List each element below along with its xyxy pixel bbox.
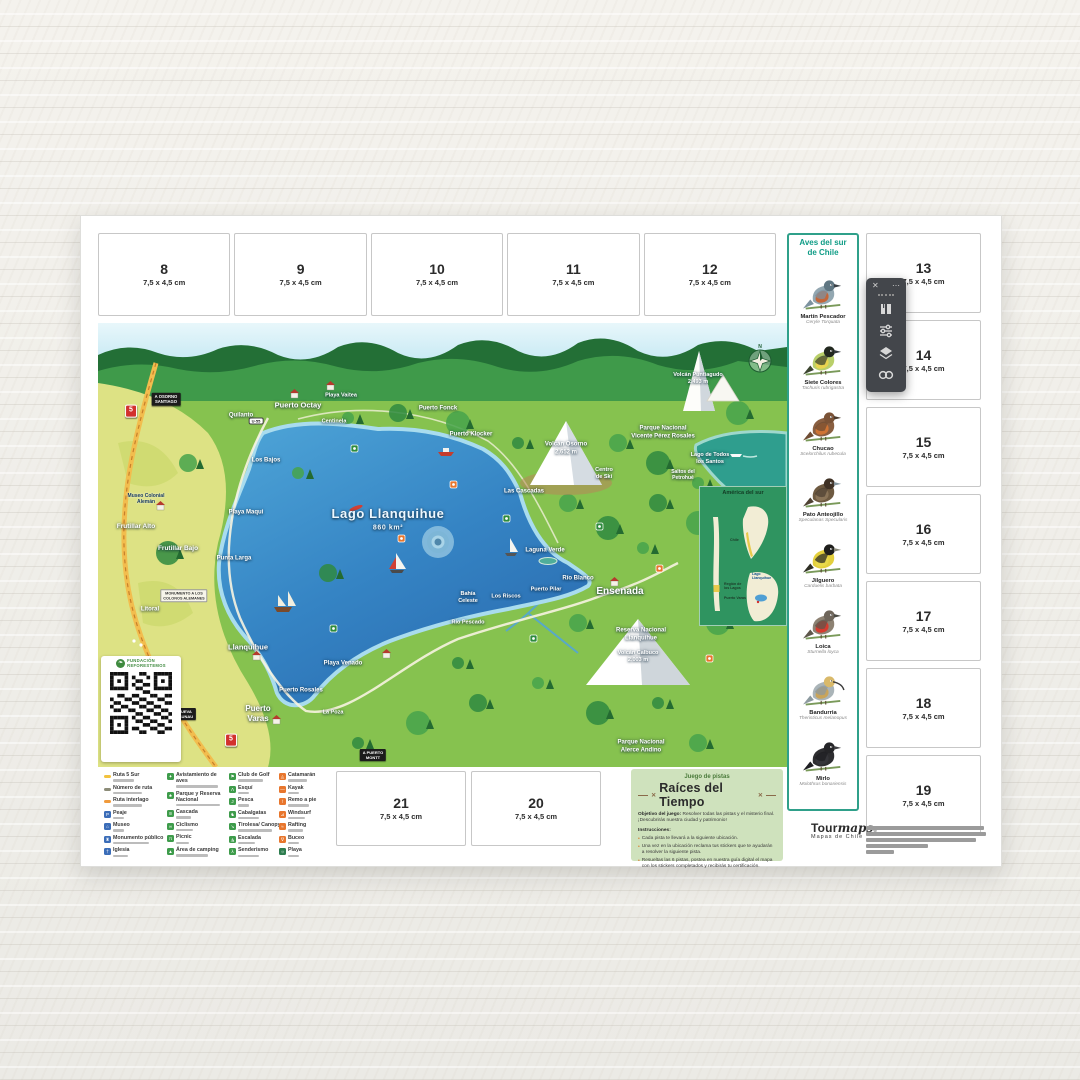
map-sign: A PUERTO MONTT: [360, 749, 386, 761]
sticker-size-label: 7,5 x 4,5 cm: [380, 812, 422, 821]
legend-label: Museo: [113, 822, 130, 828]
sticker-box-20: 207,5 x 4,5 cm: [471, 771, 601, 846]
legend-translation-bar: [238, 804, 249, 807]
qr-card: ❧ FUNDACIÓN REFORESTEMOS: [101, 656, 181, 762]
link-icon[interactable]: [873, 364, 899, 386]
legend-item: ⊺Remo a pie: [279, 797, 341, 807]
sticker-size-label: 7,5 x 4,5 cm: [902, 799, 944, 808]
legend-pictogram-icon: J: [229, 798, 236, 805]
sticker-box-10: 107,5 x 4,5 cm: [371, 233, 503, 316]
legend-translation-bar: [238, 842, 255, 845]
sticker-number: 16: [916, 522, 932, 536]
legend-translation-bar: [113, 842, 149, 845]
fine-print-bars: [866, 826, 991, 856]
legend-item: ≈Rafting: [279, 822, 341, 832]
legend-translation-bar: [288, 817, 305, 820]
sticker-size-label: 7,5 x 4,5 cm: [902, 712, 944, 721]
game-instruction: •Una vez en la ubicación reclama tus sti…: [638, 844, 776, 857]
svg-text:N: N: [758, 344, 762, 350]
map-label: Centro de Ski: [595, 467, 613, 481]
sticker-number: 18: [916, 696, 932, 710]
map-label: Reserva Nacional Llanquihue: [616, 628, 666, 643]
locator-inset: América del sur Chile Región de los Lago…: [699, 486, 787, 626]
legend-translation-bar: [113, 792, 142, 795]
sticker-number: 21: [393, 796, 409, 810]
sticker-size-label: 7,5 x 4,5 cm: [902, 625, 944, 634]
legend-label: Catamarán: [288, 772, 315, 778]
sticker-number: 12: [702, 262, 718, 276]
legend-item: ⊿Windsurf: [279, 810, 341, 820]
map-label: Lago de Todos los Santos: [691, 452, 730, 466]
route-line-swatch: [104, 775, 111, 778]
legend-pictogram-icon: ✦: [167, 773, 174, 780]
legend-label: Picnic: [176, 834, 192, 840]
fine-print-bar: [866, 838, 976, 842]
legend-label: Ruta 5 Sur: [113, 772, 140, 778]
legend-column-1: Ruta 5 SurNúmero de rutaRuta interlagoPP…: [104, 772, 166, 860]
inset-region-label: Región de los Lagos: [724, 583, 741, 591]
sticker-size-label: 7,5 x 4,5 cm: [143, 278, 185, 287]
route-shield: 5: [225, 734, 237, 747]
legend-translation-bar: [288, 829, 303, 832]
legend-pictogram-icon: ⊺: [279, 798, 286, 805]
legend-item: ◬Catamarán: [279, 772, 341, 782]
map-label: Punta Larga: [217, 555, 252, 563]
fine-print-bar: [866, 844, 928, 848]
legend-translation-bar: [238, 829, 272, 832]
legend-translation-bar: [238, 817, 259, 820]
legend-pictogram-icon: ▲: [167, 848, 174, 855]
legend-pictogram-icon: π: [167, 835, 174, 842]
sticker-box-18: 187,5 x 4,5 cm: [866, 668, 981, 748]
map-label: Las Cascadas: [504, 488, 544, 496]
sticker-size-label: 7,5 x 4,5 cm: [902, 538, 944, 547]
bird-entry: Siete Colores Tachuris rubrigastra: [789, 325, 857, 391]
legend-pictogram-icon: Λ: [229, 786, 236, 793]
map-label: Playa Vaitea: [325, 393, 357, 400]
map-label: Puerto Varas: [245, 704, 270, 724]
game-kicker: Juego de pistas: [638, 774, 776, 780]
floating-editor-toolbar[interactable]: ✕ ⋯: [866, 278, 906, 392]
bird-illustration: [801, 406, 845, 446]
legend-pictogram-icon: ◬: [279, 773, 286, 780]
legend-label: Playa: [288, 847, 302, 853]
bird-entry: Loica Sturnella loyca: [789, 589, 857, 655]
bird-scientific-name: Tachuris rubrigastra: [802, 386, 844, 391]
legend-label: Pesca: [238, 797, 253, 803]
deco-line-right: [766, 795, 776, 796]
legend-label: Ruta interlago: [113, 797, 149, 803]
game-panel: Juego de pistas ✕ Raíces del Tiempo ✕ Ob…: [631, 769, 783, 861]
legend-pictogram-icon: P: [104, 811, 111, 818]
map-label: Frutillar Bajo: [158, 545, 198, 553]
legend-item: ☼Playa: [279, 847, 341, 857]
legend-item: Ruta interlago: [104, 797, 166, 807]
drag-handle[interactable]: [878, 294, 894, 296]
legend-pictogram-icon: ⌂: [104, 823, 111, 830]
legend-label: Peaje: [113, 810, 127, 816]
laguna-verde: [539, 558, 557, 565]
legend-label: Escalada: [238, 835, 261, 841]
sticker-row-top: 87,5 x 4,5 cm97,5 x 4,5 cm107,5 x 4,5 cm…: [98, 233, 776, 316]
bird-illustration: [801, 736, 845, 776]
sticker-number: 9: [297, 262, 305, 276]
legend-pictogram-icon: ♣: [167, 792, 174, 799]
legend-label: Esquí: [238, 785, 252, 791]
legend-label: Club de Golf: [238, 772, 269, 778]
map-label: Quilanto: [229, 412, 253, 420]
bullet-icon: •: [638, 858, 640, 871]
bird-entry: Pato Anteojillo Speculanas Specularis: [789, 457, 857, 523]
sticker-box-9: 97,5 x 4,5 cm: [234, 233, 366, 316]
legend-translation-bar: [113, 804, 142, 807]
legend-item: ✦Avistamiento de aves: [167, 772, 229, 788]
map-label: 860 km²: [373, 525, 403, 534]
legend-translation-bar: [288, 842, 299, 845]
bird-illustration: [801, 274, 845, 314]
sticker-number: 11: [566, 262, 581, 276]
sticker-box-15: 157,5 x 4,5 cm: [866, 407, 981, 487]
legend-item: PPeaje: [104, 810, 166, 820]
legend-label: Área de camping: [176, 847, 219, 853]
sticker-size-label: 7,5 x 4,5 cm: [552, 278, 594, 287]
bird-scientific-name: Molothrus bonariensis: [800, 782, 847, 787]
map-artwork: N: [98, 323, 787, 767]
legend-pictogram-icon: ♜: [104, 836, 111, 843]
legend-item: ≋Cascada: [167, 809, 229, 819]
map-label: Laguna Verde: [525, 547, 564, 555]
inset-lake-label: Lago Llanquihue: [752, 573, 771, 581]
map-label: Puerto Octay: [275, 400, 322, 409]
legend-pictogram-icon: ≋: [167, 810, 174, 817]
sticker-number: 14: [916, 348, 932, 362]
legend-label: Monumento público: [113, 835, 163, 841]
legend-label: Cabalgatas: [238, 810, 266, 816]
sticker-size-label: 7,5 x 4,5 cm: [280, 278, 322, 287]
bird-illustration: [801, 340, 845, 380]
sticker-number: 19: [916, 783, 932, 797]
legend-label: Remo a pie: [288, 797, 316, 803]
legend-translation-bar: [176, 804, 220, 807]
legend-label: Senderismo: [238, 847, 268, 853]
map-label: Litoral: [141, 606, 159, 614]
legend-label: Iglesia: [113, 847, 130, 853]
birds-panel: Aves del sur de Chile Martín Pescador Ce…: [787, 233, 859, 811]
legend-translation-bar: [288, 804, 309, 807]
map-label: Los Bajos: [252, 457, 281, 465]
legend-translation-bar: [288, 779, 307, 782]
sticker-number: 13: [916, 261, 932, 275]
adjust-icon[interactable]: [873, 320, 899, 342]
bird-scientific-name: Carduelis barbata: [804, 584, 842, 589]
map-label: Los Riscos: [491, 594, 520, 601]
sticker-number: 8: [160, 262, 168, 276]
map-label: Puerto Pilar: [531, 587, 562, 594]
illustrated-map: N: [98, 323, 787, 767]
desk-background: 87,5 x 4,5 cm97,5 x 4,5 cm107,5 x 4,5 cm…: [0, 0, 1080, 1080]
sticker-size-label: 7,5 x 4,5 cm: [902, 277, 944, 286]
legend-label: Windsurf: [288, 810, 311, 816]
map-label: Lago Llanquihue: [332, 506, 445, 522]
sticker-number: 20: [528, 796, 544, 810]
bird-scientific-name: Theristicus melanopus: [799, 716, 847, 721]
bullet-icon: •: [638, 836, 640, 843]
map-label: Llanquihue: [228, 642, 268, 651]
sticker-box-12: 127,5 x 4,5 cm: [644, 233, 776, 316]
legend-translation-bar: [113, 817, 124, 820]
foundation-logo: ❧ FUNDACIÓN REFORESTEMOS: [116, 659, 166, 669]
inset-title: América del sur: [700, 490, 786, 496]
sticker-size-label: 7,5 x 4,5 cm: [902, 364, 944, 373]
bird-entry: Bandurria Theristicus melanopus: [789, 655, 857, 721]
legend-label: Cascada: [176, 809, 198, 815]
fine-print-bar: [866, 850, 894, 854]
sticker-size-label: 7,5 x 4,5 cm: [689, 278, 731, 287]
legend-translation-bar: [113, 855, 128, 858]
map-label: La Poza: [323, 710, 344, 717]
inset-country-label: Chile: [730, 539, 739, 543]
sticker-box-11: 117,5 x 4,5 cm: [507, 233, 639, 316]
map-label: Puerto Klocker: [450, 431, 493, 439]
map-label: Río Blanco: [562, 575, 593, 583]
legend-item: ♜Monumento público: [104, 835, 166, 845]
legend-translation-bar: [113, 829, 124, 832]
game-instruction: •Cada pista te llevará a la siguiente ub…: [638, 836, 776, 843]
sticker-box-8: 87,5 x 4,5 cm: [98, 233, 230, 316]
legend-item: Número de ruta: [104, 785, 166, 795]
legend-pictogram-icon: ⊿: [279, 811, 286, 818]
map-label: Frutillar Alto: [117, 523, 155, 531]
sticker-box-17: 177,5 x 4,5 cm: [866, 581, 981, 661]
legend-translation-bar: [176, 829, 193, 832]
bird-illustration: [801, 604, 845, 644]
map-label: Ensenada: [596, 586, 643, 599]
legend-label: Tirolesa/ Canopy: [238, 822, 281, 828]
legend-label: Avistamiento de aves: [176, 772, 229, 784]
legend-translation-bar: [176, 854, 208, 857]
legend-translation-bar: [176, 816, 191, 819]
sticker-size-label: 7,5 x 4,5 cm: [416, 278, 458, 287]
map-sign: MONUMENTO A LOS COLONOS ALEMANES: [160, 589, 207, 602]
game-instructions-label: Instrucciones:: [638, 828, 671, 833]
legend-item: —Kayak: [279, 785, 341, 795]
map-legend: Ruta 5 SurNúmero de rutaRuta interlagoPP…: [101, 772, 335, 860]
legend-translation-bar: [288, 855, 299, 858]
legend-pictogram-icon: —: [279, 786, 286, 793]
legend-column-4: ◬Catamarán—Kayak⊺Remo a pie⊿Windsurf≈Raf…: [279, 772, 341, 860]
legend-translation-bar: [176, 842, 189, 845]
legend-translation-bar: [176, 785, 218, 788]
legend-item: †Iglesia: [104, 847, 166, 857]
bird-scientific-name: Speculanas Specularis: [799, 518, 848, 523]
legend-item: Ruta 5 Sur: [104, 772, 166, 782]
legend-pictogram-icon: ⚑: [229, 773, 236, 780]
sticker-number: 15: [916, 435, 932, 449]
legend-item: ♣Parque y Reserva Nacional: [167, 791, 229, 807]
bird-illustration: [801, 670, 845, 710]
sticker-box-16: 167,5 x 4,5 cm: [866, 494, 981, 574]
map-label: Puerto Fonck: [419, 405, 457, 413]
legend-label: Ciclismo: [176, 822, 198, 828]
legend-pictogram-icon: ≈: [279, 823, 286, 830]
legend-label: Kayak: [288, 785, 304, 791]
legend-item: ▲Área de camping: [167, 847, 229, 857]
bird-illustration: [801, 472, 845, 512]
deco-cross-left: ✕: [651, 792, 656, 799]
map-label: Saltos del Petrohué: [671, 469, 695, 482]
bird-entry: Martín Pescador Ceryle Torquata: [789, 259, 857, 325]
map-label: Volcán Calbuco 2.003 m: [618, 650, 659, 664]
game-instructions-list: •Cada pista te llevará a la siguiente ub…: [638, 836, 776, 870]
map-label: Volcán Puntiagudo 2.493 m: [673, 372, 722, 386]
close-icon[interactable]: ✕: [872, 281, 879, 291]
game-objective-label: Objetivo del juego:: [638, 812, 681, 817]
legend-item: ⌂Museo: [104, 822, 166, 832]
map-label: Playa Venado: [324, 660, 363, 668]
legend-translation-bar: [113, 779, 134, 782]
target-marker: [422, 526, 454, 558]
legend-item: ∇Buceo: [279, 835, 341, 845]
route-line-swatch: [104, 800, 111, 803]
sticker-box-21: 217,5 x 4,5 cm: [336, 771, 466, 846]
route-shield: 5: [125, 405, 137, 418]
map-sheet: 87,5 x 4,5 cm97,5 x 4,5 cm107,5 x 4,5 cm…: [80, 215, 1002, 867]
birds-panel-title: Aves del sur de Chile: [789, 238, 857, 257]
map-label: Río Pescado: [451, 620, 484, 627]
game-title: Raíces del Tiempo: [659, 781, 755, 809]
sticker-size-label: 7,5 x 4,5 cm: [515, 812, 557, 821]
sticker-size-label: 7,5 x 4,5 cm: [902, 451, 944, 460]
inset-shapes: [700, 499, 786, 624]
legend-pictogram-icon: †: [104, 848, 111, 855]
route-line-swatch: [104, 788, 111, 791]
legend-item: πPicnic: [167, 834, 229, 844]
legend-label: Rafting: [288, 822, 306, 828]
bullet-icon: •: [638, 844, 640, 857]
bird-entry: Jilguero Carduelis barbata: [789, 523, 857, 589]
sticker-number: 10: [429, 262, 445, 276]
leaf-icon: ❧: [116, 659, 125, 668]
legend-label: Buceo: [288, 835, 304, 841]
bird-entry: Mirlo Molothrus bonariensis: [789, 721, 857, 787]
map-label: Puerto Rosales: [279, 687, 323, 695]
legend-translation-bar: [238, 792, 249, 795]
map-sign: A OSORNO SANTIAGO: [152, 393, 181, 406]
more-icon[interactable]: ⋯: [892, 281, 900, 291]
layers-icon[interactable]: [873, 342, 899, 364]
legend-pictogram-icon: ☼: [279, 848, 286, 855]
inset-city-label: Puerto Varas: [724, 597, 746, 601]
bird-entry: Chucao Scelorchilus rubecula: [789, 391, 857, 457]
map-label: Volcán Osorno 2.652 m: [545, 442, 587, 457]
legend-translation-bar: [238, 779, 263, 782]
legend-pictogram-icon: ∞: [167, 823, 174, 830]
legend-pictogram-icon: λ: [229, 848, 236, 855]
legend-pictogram-icon: ◮: [229, 836, 236, 843]
legend-column-2: ✦Avistamiento de aves♣Parque y Reserva N…: [167, 772, 229, 860]
birds-list: Martín Pescador Ceryle Torquata Siete Co…: [789, 259, 857, 787]
brand-name-part1: Tour: [811, 821, 838, 835]
legend-pictogram-icon: ↘: [229, 823, 236, 830]
map-label: Parque Nacional Alerce Andino: [617, 740, 664, 755]
map-label: Playa Maqui: [229, 509, 264, 517]
sticker-number: 17: [916, 609, 932, 623]
legend-pictogram-icon: ∇: [279, 836, 286, 843]
map-label: Parque Nacional Vicente Pérez Rosales: [631, 426, 695, 441]
legend-pictogram-icon: ♞: [229, 811, 236, 818]
map-label: Centinela: [322, 419, 347, 426]
fine-print-bar: [866, 826, 984, 830]
foundation-line2: REFORESTEMOS: [127, 663, 166, 668]
legend-item: ∞Ciclismo: [167, 822, 229, 832]
deco-cross-right: ✕: [758, 792, 763, 799]
pages-icon[interactable]: [873, 298, 899, 320]
qr-code: [110, 672, 172, 734]
map-label: Museo Colonial Alemán: [128, 493, 165, 506]
legend-label: Número de ruta: [113, 785, 152, 791]
bird-scientific-name: Scelorchilus rubecula: [800, 452, 846, 457]
legend-translation-bar: [288, 792, 299, 795]
bird-scientific-name: Ceryle Torquata: [806, 320, 840, 325]
legend-translation-bar: [238, 855, 259, 858]
fine-print-bar: [866, 832, 986, 836]
bird-scientific-name: Sturnella loyca: [807, 650, 838, 655]
game-instruction: •Resueltas las 6 pistas, postea en nuest…: [638, 858, 776, 871]
deco-line-left: [638, 795, 648, 796]
bird-illustration: [801, 538, 845, 578]
map-label: Bahía Celeste: [458, 591, 478, 605]
legend-label: Parque y Reserva Nacional: [176, 791, 229, 803]
